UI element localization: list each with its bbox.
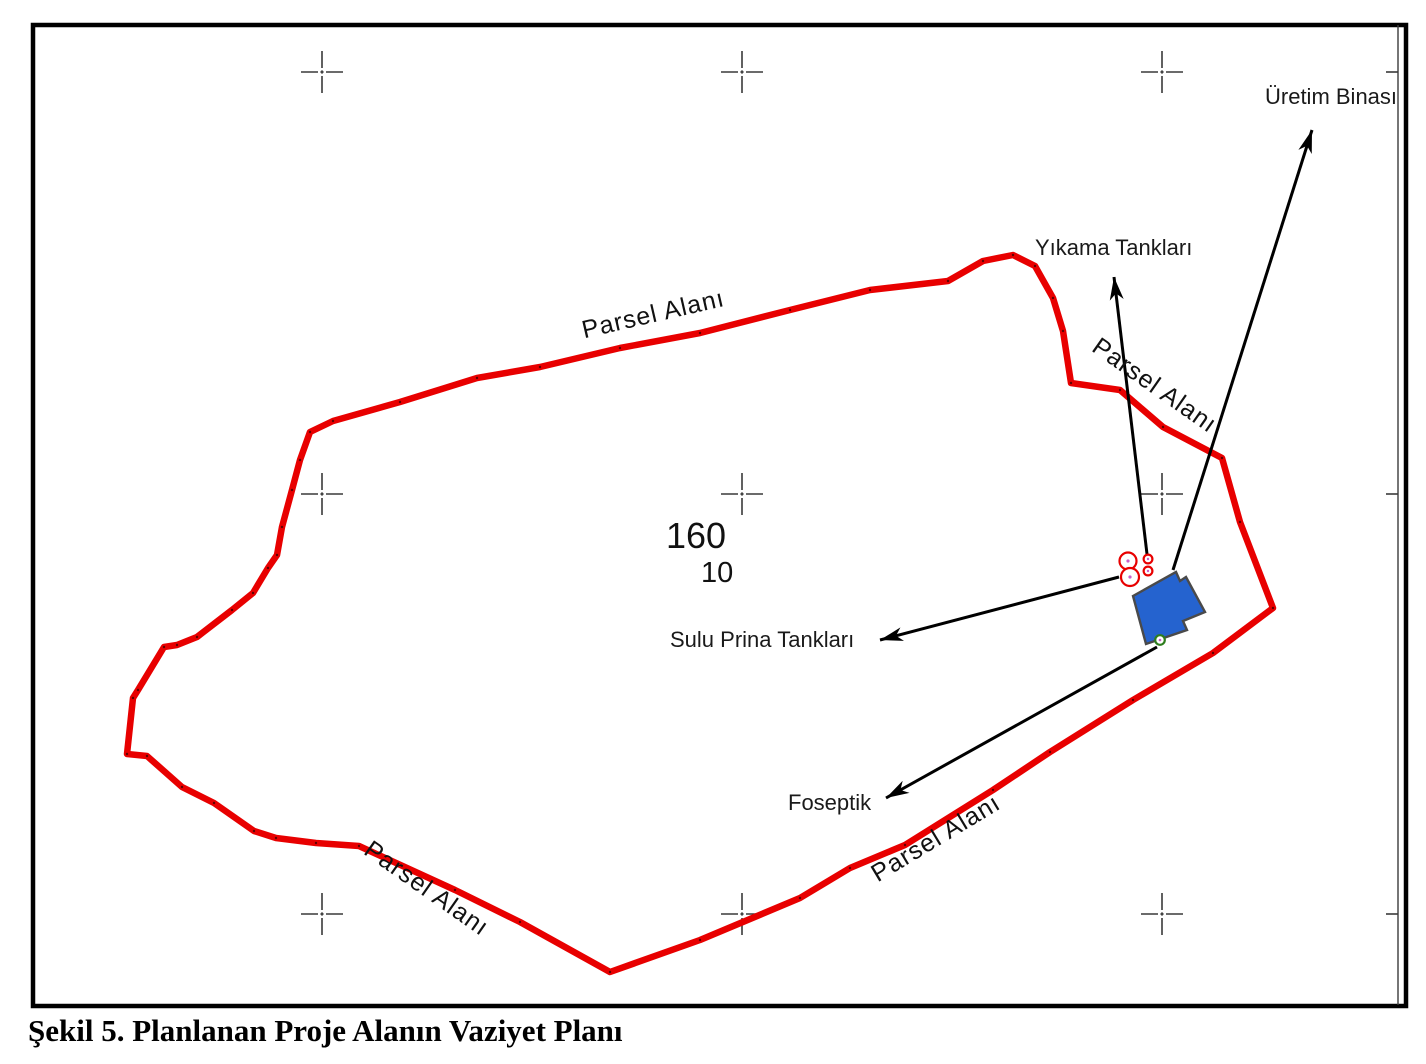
boundary-vertex-dot	[982, 260, 984, 262]
parsel-alani-label-bottom-left: Parsel Alanı	[359, 835, 494, 941]
boundary-vertex-dot	[519, 921, 521, 923]
boundary-vertex-dot	[281, 526, 283, 528]
label-production-building: Üretim Binası	[1265, 84, 1397, 109]
boundary-vertex-dot	[315, 842, 317, 844]
boundary-vertex-dot	[1221, 457, 1223, 459]
label-wet-pomace-tanks: Sulu Prina Tankları	[670, 627, 854, 652]
grid-cross-marker	[301, 893, 343, 935]
grid-cross-marker	[721, 473, 763, 515]
boundary-vertex-dot	[231, 609, 233, 611]
parcel-number: 10	[701, 557, 733, 589]
grid-cross-marker	[1141, 51, 1183, 93]
boundary-vertex-dot	[619, 347, 621, 349]
boundary-vertex-dot	[358, 845, 360, 847]
grid-cross-marker	[301, 473, 343, 515]
boundary-vertex-dot	[1070, 382, 1072, 384]
leader-wet-pomace-tanks	[880, 577, 1119, 640]
figure-caption: Şekil 5. Planlanan Proje Alanın Vaziyet …	[28, 1013, 623, 1049]
boundary-vertex-dot	[332, 420, 334, 422]
leader-washing-tanks	[1114, 277, 1147, 554]
site-plan-figure: Parsel Alanı Parsel Alanı Parsel Alanı P…	[0, 0, 1426, 1064]
boundary-vertex-dot	[176, 644, 178, 646]
parsel-alani-label-top: Parsel Alanı	[579, 284, 727, 344]
boundary-vertex-dot	[869, 289, 871, 291]
boundary-vertex-dot	[132, 697, 134, 699]
boundary-vertex-dot	[789, 309, 791, 311]
tank-center-dot	[1147, 558, 1149, 560]
parsel-alani-label-bottom-right: Parsel Alanı	[866, 789, 1005, 888]
boundary-vertex-dot	[253, 830, 255, 832]
boundary-vertex-dot	[1239, 521, 1241, 523]
boundary-vertex-dot	[252, 592, 254, 594]
boundary-vertex-dot	[213, 802, 215, 804]
boundary-vertex-dot	[137, 689, 139, 691]
boundary-vertex-dot	[699, 332, 701, 334]
boundary-vertex-dot	[309, 431, 311, 433]
grid-cross-marker	[1141, 893, 1183, 935]
site-plan-svg: Parsel Alanı Parsel Alanı Parsel Alanı P…	[0, 0, 1426, 1064]
boundary-vertex-dot	[1162, 426, 1164, 428]
leader-septic-tank	[886, 647, 1157, 798]
boundary-vertex-dot	[1034, 265, 1036, 267]
grid-cross-marker	[1141, 473, 1183, 515]
tank-center-dot	[1126, 559, 1129, 562]
boundary-vertex-dot	[1012, 254, 1014, 256]
boundary-vertex-dot	[1049, 751, 1051, 753]
boundary-vertex-dot	[299, 459, 301, 461]
boundary-vertex-dot	[799, 897, 801, 899]
boundary-vertex-dot	[1132, 699, 1134, 701]
leader-production-building	[1173, 130, 1312, 570]
boundary-vertex-dot	[291, 489, 293, 491]
tank-center-dot	[1147, 570, 1149, 572]
boundary-vertex-dot	[1062, 330, 1064, 332]
boundary-vertex-dot	[267, 567, 269, 569]
septic-center-dot	[1159, 639, 1162, 642]
boundary-vertex-dot	[181, 786, 183, 788]
boundary-vertex-dot	[947, 280, 949, 282]
boundary-vertex-dot	[399, 401, 401, 403]
boundary-vertex-dot	[1212, 652, 1214, 654]
boundary-vertex-dot	[1272, 607, 1274, 609]
tank-center-dot	[1128, 575, 1131, 578]
boundary-vertex-dot	[163, 646, 165, 648]
grid-cross-marker	[301, 51, 343, 93]
boundary-vertex-dot	[539, 366, 541, 368]
production-building-shape	[1133, 572, 1205, 644]
boundary-vertex-dot	[1052, 297, 1054, 299]
label-washing-tanks: Yıkama Tankları	[1035, 235, 1192, 260]
boundary-vertex-dot	[196, 636, 198, 638]
grid-cross-marker	[721, 51, 763, 93]
boundary-vertex-dot	[1119, 389, 1121, 391]
boundary-vertex-dot	[126, 753, 128, 755]
label-septic-tank: Foseptik	[788, 790, 872, 815]
boundary-vertex-dot	[276, 554, 278, 556]
parcel-block-number: 160	[666, 515, 726, 556]
boundary-vertex-dot	[476, 377, 478, 379]
boundary-vertex-dot	[609, 971, 611, 973]
boundary-vertex-dot	[699, 939, 701, 941]
boundary-vertex-dot	[849, 867, 851, 869]
boundary-vertex-dot	[146, 755, 148, 757]
boundary-vertex-dot	[275, 837, 277, 839]
